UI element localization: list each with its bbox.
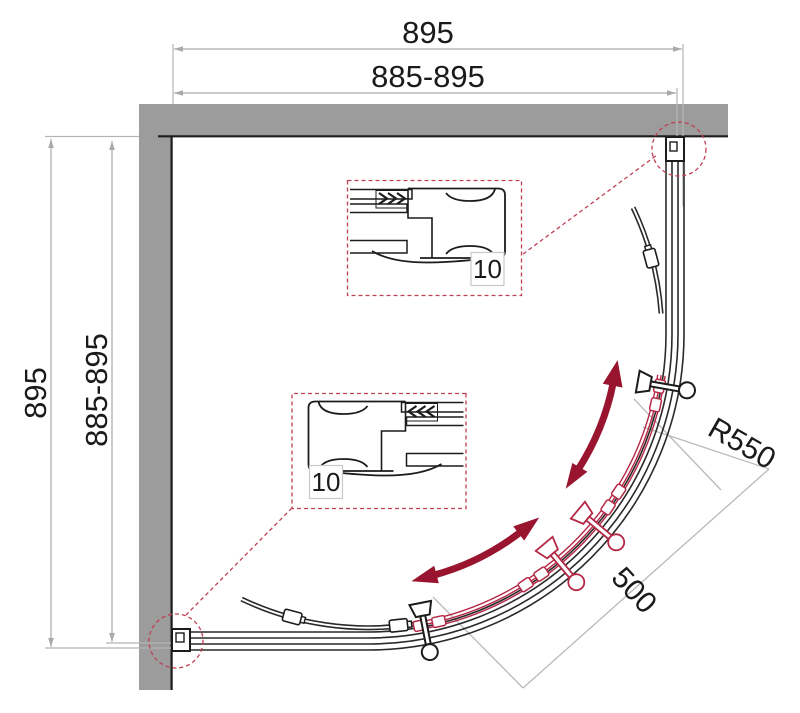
arrow-head-icon bbox=[411, 566, 438, 583]
clamp-bracket bbox=[642, 244, 659, 268]
arrow-head-icon bbox=[603, 360, 623, 387]
left-wall bbox=[139, 104, 172, 690]
dim-arrow bbox=[48, 139, 54, 148]
arrow-arc bbox=[433, 531, 522, 576]
wall-profile-top-inner bbox=[670, 142, 677, 151]
dim-label-top-adjust: 885-895 bbox=[371, 59, 485, 94]
arrow-head-icon bbox=[566, 463, 588, 489]
dim-label-left-overall: 895 bbox=[18, 367, 53, 419]
dim-arrow bbox=[109, 633, 115, 642]
handle-open-door-1 bbox=[636, 371, 697, 403]
dim-arrow bbox=[174, 46, 183, 52]
shower-enclosure-plan: 895 885-895 895 885-895 R550 500 10 10 bbox=[0, 0, 800, 713]
top-wall bbox=[139, 104, 728, 136]
wall-profile-bottom-inner bbox=[176, 633, 184, 642]
track-line bbox=[190, 161, 672, 638]
dim-arrow bbox=[48, 638, 54, 647]
radius-label: R550 bbox=[702, 412, 781, 476]
arrow-arc bbox=[578, 382, 614, 471]
dim-arrow bbox=[667, 90, 676, 96]
dim-arrow bbox=[174, 90, 183, 96]
technical-drawing-canvas: 895 885-895 895 885-895 R550 500 10 10 bbox=[0, 0, 800, 713]
dim-arrow bbox=[109, 141, 115, 150]
callout-leader bbox=[523, 155, 657, 254]
entry-width-label: 500 bbox=[605, 561, 663, 620]
dim-arrow bbox=[673, 46, 682, 52]
detail-top-adjustment-label: 10 bbox=[473, 254, 502, 284]
handle-open-door-2 bbox=[409, 601, 442, 662]
clamp-bracket bbox=[389, 618, 412, 632]
detail-bottom-adjustment-label: 10 bbox=[312, 467, 341, 497]
dim-label-top-overall: 895 bbox=[402, 15, 454, 50]
fixed-panel-clamps bbox=[282, 244, 659, 632]
dim-label-left-adjust: 885-895 bbox=[79, 333, 114, 447]
clamp-bracket bbox=[282, 609, 306, 626]
track-line bbox=[190, 161, 666, 632]
callout-leader bbox=[186, 508, 292, 615]
